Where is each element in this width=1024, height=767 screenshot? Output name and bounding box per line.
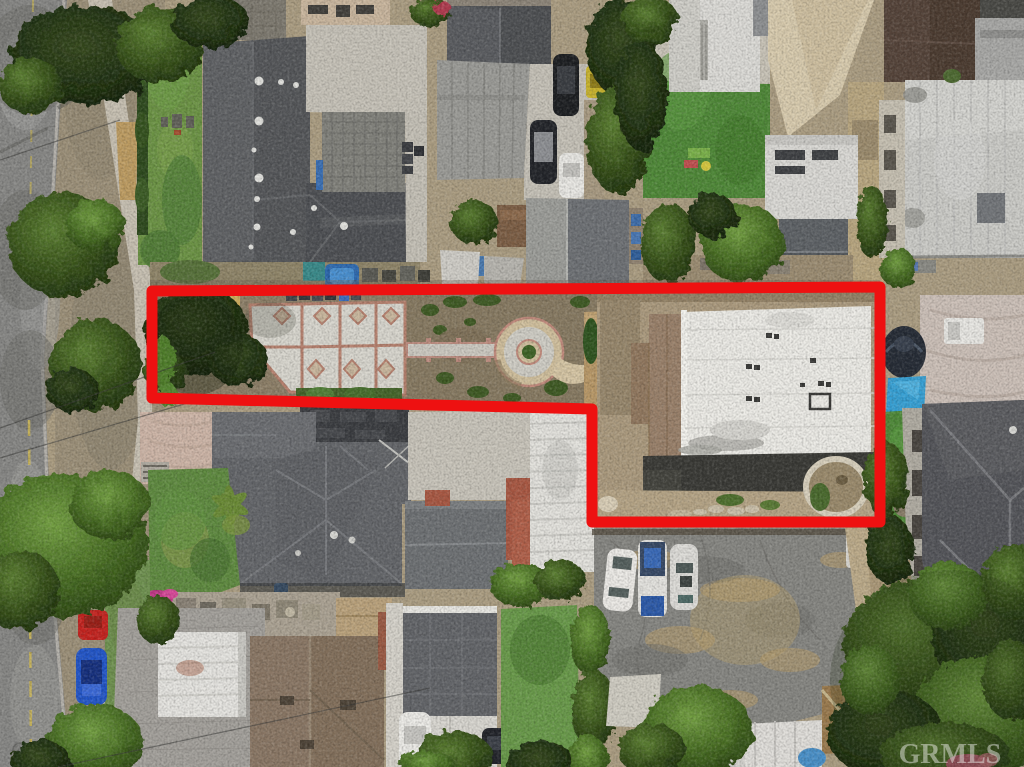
svg-text:GRMLS: GRMLS: [899, 739, 1002, 767]
